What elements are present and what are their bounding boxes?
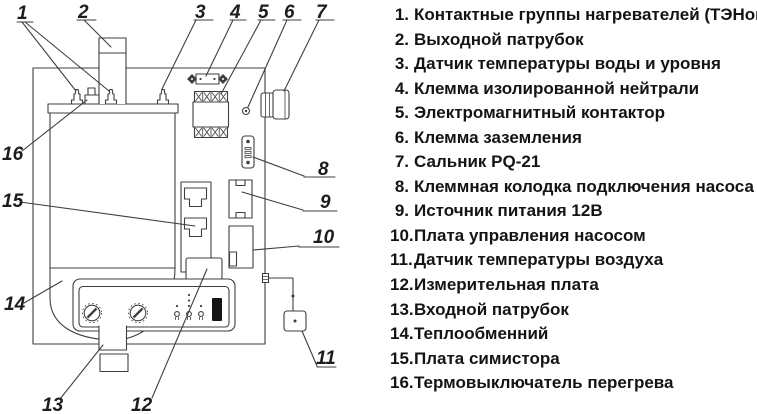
legend-item-number: 16. <box>390 371 409 396</box>
legend-item: 16.Термовыключатель перегрева <box>390 371 756 396</box>
callout-label-9: 9 <box>320 192 331 213</box>
contactor-icon <box>193 92 229 138</box>
legend-item-number: 4. <box>390 77 409 102</box>
callout-label-10: 10 <box>313 227 335 248</box>
callout-label-1: 1 <box>17 3 28 24</box>
psu-board-icon <box>229 180 252 218</box>
display-window <box>212 298 222 321</box>
callout-label-3: 3 <box>195 2 206 23</box>
legend-item: 3.Датчик температуры воды и уровня <box>390 52 756 77</box>
legend-item-number: 13. <box>390 298 409 323</box>
legend-item-text: Теплообменний <box>414 322 548 347</box>
legend-item: 7.Сальник PQ-21 <box>390 150 756 175</box>
legend-item-number: 1. <box>390 3 409 28</box>
legend-item-number: 6. <box>390 126 409 151</box>
cable-gland-icon <box>261 90 289 119</box>
callout-label-4: 4 <box>229 2 241 23</box>
legend-item-text: Сальник PQ-21 <box>414 150 540 175</box>
legend-item-number: 7. <box>390 150 409 175</box>
pump-control-board-icon <box>229 226 253 268</box>
legend-item: 10.Плата управления насосом <box>390 224 756 249</box>
parts-legend: 1.Контактные группы нагревателей (ТЭНов)… <box>390 3 756 396</box>
legend-item-text: Клемма заземления <box>414 126 582 151</box>
legend-item-text: Клеммная колодка подключения насоса <box>414 175 754 200</box>
page: 1 2 3 4 5 6 7 8 9 10 11 12 13 14 15 16 1… <box>0 0 757 414</box>
legend-item-text: Датчик температуры воздуха <box>414 248 663 273</box>
legend-item-number: 3. <box>390 52 409 77</box>
legend-item-text: Клемма изолированной нейтрали <box>414 77 699 102</box>
legend-item-text: Плата управления насосом <box>414 224 646 249</box>
legend-item: 4.Клемма изолированной нейтрали <box>390 77 756 102</box>
legend-item-text: Выходной патрубок <box>414 28 584 53</box>
leader-lines <box>17 20 339 399</box>
callout-label-8: 8 <box>318 159 329 180</box>
legend-item-text: Контактные группы нагревателей (ТЭНов) <box>414 3 757 28</box>
callout-label-5: 5 <box>258 2 269 23</box>
water-temp-level-sensor-icon <box>158 90 169 105</box>
legend-item: 8.Клеммная колодка подключения насоса <box>390 175 756 200</box>
legend-item-text: Плата симистора <box>414 347 560 372</box>
boiler-schematic-svg: 1 2 3 4 5 6 7 8 9 10 11 12 13 14 15 16 <box>0 0 390 414</box>
legend-item: 9.Источник питания 12В <box>390 199 756 224</box>
legend-item-number: 12. <box>390 273 409 298</box>
pump-terminal-strip-icon <box>242 136 254 168</box>
legend-item-text: Термовыключатель перегрева <box>414 371 673 396</box>
legend-item-number: 15. <box>390 347 409 372</box>
legend-item: 1.Контактные группы нагревателей (ТЭНов) <box>390 3 756 28</box>
control-panel <box>73 279 235 331</box>
legend-item-text: Входной патрубок <box>414 298 569 323</box>
neutral-terminal-icon <box>187 74 228 84</box>
input-pipe <box>99 326 128 372</box>
callout-label-14: 14 <box>4 294 26 315</box>
legend-item: 15.Плата симистора <box>390 347 756 372</box>
legend-item-number: 2. <box>390 28 409 53</box>
legend-item-number: 14. <box>390 322 409 347</box>
legend-item-number: 9. <box>390 199 409 224</box>
legend-item-text: Датчик температуры воды и уровня <box>414 52 721 77</box>
legend-item: 13.Входной патрубок <box>390 298 756 323</box>
legend-item: 14.Теплообменний <box>390 322 756 347</box>
legend-item-text: Электромагнитный контактор <box>414 101 665 126</box>
legend-item: 12.Измерительная плата <box>390 273 756 298</box>
callout-label-16: 16 <box>2 144 24 165</box>
callout-label-6: 6 <box>284 2 295 23</box>
legend-item-number: 8. <box>390 175 409 200</box>
legend-item: 2.Выходной патрубок <box>390 28 756 53</box>
callout-label-13: 13 <box>42 395 64 414</box>
legend-item-number: 5. <box>390 101 409 126</box>
air-temp-sensor <box>263 274 307 332</box>
legend-item: 11.Датчик температуры воздуха <box>390 248 756 273</box>
boiler-schematic-diagram: 1 2 3 4 5 6 7 8 9 10 11 12 13 14 15 16 <box>0 0 390 414</box>
legend-item-number: 10. <box>390 224 409 249</box>
legend-item: 5.Электромагнитный контактор <box>390 101 756 126</box>
callout-label-11: 11 <box>316 348 336 369</box>
legend-item: 6.Клемма заземления <box>390 126 756 151</box>
ground-terminal-icon <box>243 108 250 115</box>
legend-item-number: 11. <box>390 248 409 273</box>
callout-label-7: 7 <box>316 2 328 23</box>
callout-label-2: 2 <box>77 2 89 23</box>
callout-labels: 1 2 3 4 5 6 7 8 9 10 11 12 13 14 15 16 <box>2 2 336 414</box>
overheat-thermoswitch-icon <box>85 88 99 104</box>
heater-contact-group-icon <box>72 90 83 105</box>
legend-item-text: Измерительная плата <box>414 273 599 298</box>
legend-item-text: Источник питания 12В <box>414 199 603 224</box>
callout-label-15: 15 <box>2 191 24 212</box>
callout-label-12: 12 <box>131 395 153 414</box>
